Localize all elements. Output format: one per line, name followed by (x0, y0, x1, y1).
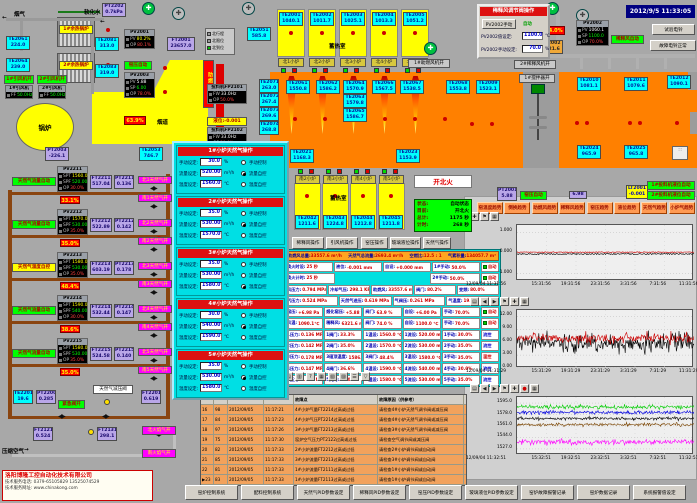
label-gy: 2#稀释风机开 (514, 60, 556, 69)
valve-icon[interactable]: ◀▶ (150, 357, 156, 364)
ng-radio-label[interactable]: 温度自控 (249, 284, 267, 290)
tag-PT2214: PT22140.147 (114, 304, 134, 318)
ng-radio-0[interactable] (241, 364, 246, 369)
chart-xtick: 15:32:51 (532, 456, 551, 461)
controller-row: PV80.2% (125, 36, 154, 42)
company-website[interactable]: 技术服务网址: www.chinakong.com (5, 486, 150, 492)
dilution-fan-dialog: 稀释风调节阀操作 PV2002手动 自动 PV2002值设定: 1100.0 ℃… (477, 4, 550, 59)
tag-value: 1211.8 (380, 222, 402, 228)
pv2002-setpoint-input[interactable]: 1100.0 (522, 32, 543, 40)
controller-row: SP1100.0 (577, 33, 608, 39)
tag-FT2201: FT22010.619 (141, 390, 161, 404)
tag-FT2121: FT21210.524 (33, 427, 53, 441)
status-row: 计时:268 秒 (417, 222, 469, 229)
stirrer-paddle (529, 116, 547, 119)
bottom-button-2[interactable]: 天然气PID参数设定 (297, 485, 350, 500)
ng-radio-label[interactable]: 手动控制 (249, 160, 267, 166)
alarm-table-row[interactable]: 16982012/09/0511:17:214#小炉气量FT2214过高或过低请… (201, 405, 466, 415)
ng-field-input[interactable]: 520.00 (200, 169, 222, 177)
panel-value-cell: 液位:-0.001 mm (334, 262, 382, 272)
panel-value-cell: 1阀门:33.3% (324, 330, 362, 340)
gas-valve-opening: 33.1% (60, 196, 80, 204)
ng-field-input[interactable]: 35.0 (200, 209, 222, 217)
valve-icon[interactable]: ◀▶ (150, 332, 156, 339)
port-open-indicator[interactable] (312, 68, 317, 73)
chart-xtick: 7:31:56 (650, 282, 667, 287)
tag-value: 1011.7 (311, 19, 333, 25)
valve-icon[interactable]: ◀▶ (150, 228, 156, 235)
port-close-indicator[interactable] (365, 169, 370, 174)
label-gr: 紧急阀开 (58, 400, 85, 409)
ng-field-unit: % (224, 262, 228, 267)
tag-value: 1586.7 (344, 115, 366, 121)
trend-button-1[interactable]: 倒换趋势 (504, 202, 530, 214)
panel-value-cell: 阀门:63.9 % (363, 307, 401, 317)
ng-panel-2: 2#小炉天然气操作手动设定:35.0%流量设定:530.00m³/h温度设定:1… (176, 196, 285, 245)
trend-button-4[interactable]: 窑压趋势 (587, 202, 613, 214)
table-toolbar-icon[interactable]: ? (306, 372, 315, 381)
gas-valve-opening: 35.0% (60, 368, 80, 376)
boiler-label: 锅炉 (39, 122, 52, 132)
pan-icon[interactable]: ✚ (510, 297, 519, 306)
panel-value-cell: 助燃风:33557.6 m³/h (371, 285, 413, 295)
bottom-button-5[interactable]: 玻璃液位PID参数设定 (465, 485, 518, 500)
pan-icon[interactable]: ✚ (510, 384, 519, 393)
op-button-2[interactable]: 窑压操作 (361, 237, 388, 249)
chart-xtick: 7:32:51 (650, 456, 667, 461)
status-row: 状态:自动状态 (417, 201, 469, 208)
fan-icon: ✚ (172, 7, 185, 20)
ng-radio-label[interactable]: 温度自控 (249, 335, 267, 341)
panel-value-cell: 自设:+6.00 Pa (403, 307, 441, 317)
ng-field-input[interactable]: 1580.0 (200, 384, 222, 392)
thermocouple-dot (163, 90, 167, 94)
tag-TE2001: TE20011040.1 (279, 12, 303, 26)
ng-radio-label[interactable]: 流量自控 (249, 222, 267, 228)
damper-dot (361, 194, 365, 198)
pv2002-manual-label: PV2002手动设定: (481, 47, 517, 53)
tag-TE2066: TE20661567.5 (372, 80, 396, 94)
tag-value: -226.1 (46, 154, 68, 160)
tag-FT2211: FT2211517.04 (90, 175, 112, 189)
panel-value-cell: 1温设:1560.0 ℃ (363, 330, 401, 340)
flag-icon[interactable]: ⚑ (480, 212, 489, 221)
ng-operation-dialog: 1#小炉天然气操作手动设定:30.0%流量设定:520.00m³/h温度设定:1… (172, 141, 289, 400)
tag-TE2062: TE20621586.2 (316, 80, 340, 94)
gas-valve-north-label: 北2天然气开 (138, 219, 172, 227)
tag-value: 19.6 (14, 397, 32, 403)
gas-valve-south-label: 南1天然气开 (138, 194, 172, 202)
static-text: → (24, 447, 29, 453)
ng-radio-0[interactable] (241, 262, 246, 267)
thermocouple-dot (628, 121, 632, 125)
panel-value-cell: 5流设:530.00 m³/h (403, 375, 441, 385)
chart-toolbar: ▤◀▶⚑✚▦ (470, 297, 529, 306)
ng-radio-2[interactable] (241, 233, 246, 238)
tag-TE2071: TE2071263.0 (259, 79, 279, 93)
chart-icon[interactable]: ▤ (470, 384, 479, 393)
trend-button-2[interactable]: 助燃风趋势 (532, 202, 558, 214)
tag-value: 268.8 (260, 128, 278, 134)
valve-icon: ◀▶ (102, 413, 108, 420)
flag-icon[interactable]: ⚑ (500, 384, 509, 393)
alarm-table-row[interactable]: 19752012/09/0511:17:30窑炉空气压力PT2122过高或过低请… (201, 435, 466, 445)
chart-xtick: 15:31:29 (532, 369, 551, 374)
panel-value-cell: 自设:1100.0 ℃ (403, 318, 441, 328)
port-open-indicator[interactable] (382, 169, 387, 174)
status-row: 目前:开北火 (417, 208, 469, 215)
pipe (580, 58, 583, 69)
valve-icon[interactable]: ◀▶ (150, 375, 156, 382)
valve-icon[interactable]: ◀▶ (150, 314, 156, 321)
trend-chart-1[interactable] (516, 309, 693, 367)
port-open-indicator[interactable] (343, 68, 348, 73)
panel-value-cell: 3碹顶温度:1586.7℃ (324, 352, 362, 362)
fan-icon: ✚ (142, 2, 155, 15)
chart-ytick: 1561.0 (466, 422, 512, 427)
op-button-3[interactable]: 玻璃液位操作 (390, 237, 421, 249)
port-open-indicator[interactable] (281, 68, 286, 73)
alarm-table-row[interactable]: 18972012/09/0511:17:263#小炉气量FT2213过高或过低请… (201, 425, 466, 435)
ng-field-input[interactable]: 35.0 (200, 362, 222, 370)
chart-xtick: 11:31:56 (679, 282, 697, 287)
trend-chart-2[interactable] (516, 396, 693, 454)
ng-field-input[interactable]: 1580.0 (200, 282, 222, 290)
damper-dot (320, 31, 324, 35)
ng-panel-5: 5#小炉天然气操作手动设定:35.0%流量设定:530.00m³/h温度设定:1… (176, 349, 285, 398)
valve-icon[interactable]: ◀▶ (150, 246, 156, 253)
ng-radio-label[interactable]: 流量自控 (249, 324, 267, 330)
flag-icon[interactable]: ⚑ (500, 297, 509, 306)
tag-value: 965.9 (578, 152, 600, 158)
trend-button-7[interactable]: 小炉气趋势 (669, 202, 695, 214)
ng-field-label: 温度设定: (179, 182, 198, 188)
reversal-legend: 北行程北限位北到位 (205, 28, 235, 55)
fan-icon: ✚ (424, 42, 437, 55)
table-toolbar-icon[interactable]: ☰ (350, 372, 359, 381)
valve-icon[interactable]: ◀▶ (150, 289, 156, 296)
alarm-table-row[interactable]: 22812012/09/0511:17:331#小炉流量FT2111过高或过低请… (201, 465, 466, 475)
valve-icon[interactable]: ◀▶ (150, 203, 156, 210)
ng-radio-0[interactable] (241, 211, 246, 216)
tag-TE2042: TE20421211.6 (295, 215, 319, 229)
label-gy: 1#搅拌器开 (519, 74, 555, 83)
ng-field-input[interactable]: 30.0 (200, 311, 222, 319)
label-yl: 2#余热锅炉 (59, 61, 93, 70)
tag-FT2212: FT2212522.89 (90, 218, 112, 232)
bottom-button-1[interactable]: 配料控制系统 (241, 485, 294, 500)
chart-icon[interactable]: ▤ (470, 297, 479, 306)
chart-xtick: 11:31:29 (679, 369, 697, 374)
panel-value-cell: 阀门:80.2% (414, 285, 456, 295)
thermocouple-dot (638, 121, 642, 125)
ng-radio-0[interactable] (241, 160, 246, 165)
chart-ytick: 1527.0 (466, 445, 512, 450)
port-close-indicator[interactable] (309, 169, 314, 174)
ng-radio-1[interactable] (241, 171, 246, 176)
gas-valve-north-label: 北4天然气开 (138, 305, 172, 313)
bottom-button-3[interactable]: 稀释风PID参数设定 (353, 485, 406, 500)
chart-start-label: 12/09/04 11:31:29 (466, 369, 506, 374)
table-toolbar-icon[interactable]: ▦ (317, 372, 326, 381)
port-close-indicator[interactable] (323, 68, 328, 73)
panel-value-cell: 2压力:0.142 MPa (285, 341, 323, 351)
panel-value-cell: 2温设:1570.0 ℃ (363, 341, 401, 351)
chart-xtick: 19:31:56 (561, 282, 580, 287)
ng-field-input[interactable]: 1570.0 (200, 231, 222, 239)
thermocouple-dot (106, 28, 110, 32)
pv2002-manual-button[interactable]: PV2002手动 (482, 19, 516, 29)
alarm-table-row[interactable]: 20822012/09/0511:17:332#小炉流量FT2212过高或过低请… (201, 445, 466, 455)
chart-xtick: 3:31:29 (620, 369, 637, 374)
ng-radio-2[interactable] (241, 284, 246, 289)
chart-xtick: 23:32:51 (591, 456, 610, 461)
panel-value-cell: 风温:1090.1℃ (285, 318, 323, 328)
alarm-table-row[interactable]: 21852012/09/0511:17:333#小炉流量FT2213过高或过低请… (201, 455, 466, 465)
stop-icon[interactable]: ● (520, 384, 529, 393)
stirrer-motor (531, 84, 545, 94)
port-close-indicator[interactable] (337, 169, 342, 174)
tag-TE2064: TE20641570.9 (343, 80, 367, 94)
alarm-table-row[interactable]: 17842012/09/0511:17:234#小炉气压PT2214过高或过低请… (201, 415, 466, 425)
table-toolbar-icon[interactable]: ▽ (361, 372, 370, 381)
tag-value: 319.0 (96, 71, 118, 77)
op-button-1[interactable]: 引风机操作 (326, 237, 358, 249)
static-text: ← (100, 19, 105, 25)
valve-icon[interactable]: ◀▶ (150, 185, 156, 192)
datetime-display: 2012/9/5 11:33:05 (626, 5, 695, 18)
gas-valve-north-label: 北1天然气开 (138, 176, 172, 184)
tag-value: 1079.6 (625, 84, 647, 90)
ng-radio-2[interactable] (241, 335, 246, 340)
static-text: 压缩空气 (2, 447, 24, 455)
ng-field-input[interactable]: 540.00 (200, 322, 222, 330)
thermocouple-dot (443, 117, 447, 121)
pv2002-setpoint-unit: ℃ (545, 34, 550, 39)
chart-xtick: 19:31:29 (561, 369, 580, 374)
bottom-button-4[interactable]: 窑压PID参数设定 (409, 485, 462, 500)
ng-panel-title: 4#小炉天然气操作 (178, 300, 283, 309)
port-open-indicator[interactable] (405, 68, 410, 73)
port-close-indicator[interactable] (416, 68, 421, 73)
pv2002-manual-input[interactable]: 70.0 (522, 45, 543, 53)
ng-field-unit: % (224, 364, 228, 369)
ng-radio-label[interactable]: 温度自控 (249, 386, 267, 392)
port-open-indicator[interactable] (354, 169, 359, 174)
pipe (608, 58, 611, 69)
tag-TE2081: TE2081313.0 (95, 37, 119, 51)
gas-valve-south-label: 南3天然气开 (138, 280, 172, 288)
table-toolbar-icon[interactable]: ▨ (339, 372, 348, 381)
ng-radio-1[interactable] (241, 375, 246, 380)
tag-value: 1579.8 (344, 101, 366, 107)
gas-valve-opening: 35.0% (60, 239, 80, 247)
mimic-shape (92, 92, 208, 144)
label-gr: 2#投料机液位自动 (647, 191, 695, 200)
tag-value: 0.285 (37, 397, 55, 403)
ng-field-input[interactable]: 30.0 (200, 158, 222, 166)
damper-dot (305, 194, 309, 198)
save-icon[interactable]: ▦ (490, 212, 499, 221)
bottom-button-6[interactable]: 窑炉故障报警记录 (521, 485, 574, 500)
chart-xtick: 11:32:51 (679, 456, 697, 461)
ng-radio-label[interactable]: 温度自控 (249, 182, 267, 188)
port-close-indicator[interactable] (292, 68, 297, 73)
save-icon[interactable]: ▦ (530, 384, 539, 393)
port-close-indicator[interactable] (354, 68, 359, 73)
ng-field-input[interactable]: 530.00 (200, 220, 222, 228)
label-gr: 窑压自动 (520, 191, 547, 200)
tag-value: 1040.1 (280, 19, 302, 25)
bottom-button-7[interactable]: 窑炉数据记录 (577, 485, 630, 500)
ng-radio-2[interactable] (241, 182, 246, 187)
ng-radio-label[interactable]: 手动控制 (249, 262, 267, 268)
controller-PV2213: PV2213SPT1580.0SPF530.00OP35.0% (57, 252, 88, 278)
ng-field-label: 流量设定: (179, 222, 198, 228)
trend-chart-0[interactable] (516, 224, 693, 280)
valve-icon[interactable]: ◀▶ (150, 271, 156, 278)
port-close-indicator[interactable] (385, 68, 390, 73)
tag-TE2005: TE20051051.2 (403, 12, 427, 26)
port-label-north: 北1小炉 (278, 58, 304, 67)
op-button-0[interactable]: 稀释风操作 (292, 237, 324, 249)
ng-field-unit: m³/h (224, 222, 234, 227)
fault-bell-status-button[interactable]: 故障电铃正常 (650, 40, 696, 51)
fan-icon: ✚ (242, 2, 255, 15)
tag-TE2012: TE20121090.1 (667, 75, 691, 89)
bottom-button-0[interactable]: 窑炉控制系统 (185, 485, 238, 500)
valve-opening-value: 63.9% (124, 116, 146, 125)
label-yl: 液位:-0.001 (207, 117, 247, 126)
ng-radio-1[interactable] (241, 222, 246, 227)
static-text: ← (2, 15, 7, 21)
boiler-shape: 锅炉 (16, 103, 74, 151)
pipe (543, 54, 695, 58)
ng-panel-title: 2#小炉天然气操作 (178, 198, 283, 207)
alarm-table: 故障点故障原因（供参考）16982012/09/0511:17:214#小炉气量… (200, 394, 467, 486)
ng-radio-label[interactable]: 流量自控 (249, 273, 267, 279)
trend-button-5[interactable]: 液位趋势 (614, 202, 640, 214)
prev-icon[interactable]: ◀ (480, 384, 489, 393)
scada-furnace-screen: 2012/9/5 11:33:05 锅炉 北行程北限位北到位 开北火 状态:自动… (0, 0, 697, 503)
ng-radio-label[interactable]: 流量自控 (249, 375, 267, 381)
next-icon[interactable]: ▶ (490, 297, 499, 306)
chart-ytick: 1595.0 (466, 399, 512, 404)
tag-TE2010: TE20101081.1 (577, 77, 601, 91)
bottom-button-8[interactable]: 系统报警值设定 (633, 485, 686, 500)
tag-TE2004: TE20041013.3 (372, 12, 396, 26)
controller-row: PV1060.1 (577, 27, 608, 33)
tag-value: 1153.9 (397, 156, 419, 162)
panel-value-cell: 3温设:1580.0 ℃ (403, 352, 441, 362)
tag-value: 1567.5 (373, 87, 395, 93)
table-toolbar-icon[interactable]: ▧ (328, 372, 337, 381)
tag-value: 239.0 (7, 65, 29, 71)
alarm-table-row[interactable]: ▶23832012/09/0511:17:331#小炉流量FT2113过高或过低… (201, 475, 466, 485)
thermocouple-dot (383, 117, 387, 121)
ng-radio-label[interactable]: 手动控制 (249, 211, 267, 217)
ng-field-label: 温度设定: (179, 284, 198, 290)
tag-value: 746.7 (140, 154, 162, 160)
prev-icon[interactable]: ◀ (480, 297, 489, 306)
pipe (636, 58, 639, 69)
save-icon[interactable]: ▦ (520, 297, 529, 306)
tag-FT2001: FT200123657.0 (167, 37, 195, 51)
port-open-indicator[interactable] (374, 68, 379, 73)
trend-button-6[interactable]: 天然气趋势 (641, 202, 667, 214)
next-icon[interactable]: ▶ (490, 384, 499, 393)
ng-radio-label[interactable]: 手动控制 (249, 313, 267, 319)
ng-field-input[interactable]: 1560.0 (200, 180, 222, 188)
tag-value: -0.001 (627, 192, 647, 198)
static-text: 蓄热室 (329, 42, 346, 50)
test-bell-button[interactable]: 试验电铃 (652, 24, 695, 35)
panel-value-cell: 煅化窑压:+5.88 Pa (324, 307, 362, 317)
ng-field-label: 手动设定: (179, 262, 198, 268)
tag-LT2001: LT2001-0.001 (626, 185, 648, 199)
port-open-indicator[interactable] (298, 169, 303, 174)
tag-FT2214: FT2214532.44 (90, 304, 112, 318)
pv2002-mode-state: 自动 (523, 21, 532, 27)
panel-value-cell: 3压力:0.178 MPa (285, 352, 323, 362)
ng-field-input[interactable]: 530.00 (200, 373, 222, 381)
ng-field-unit: % (224, 160, 228, 165)
ng-field-label: 温度设定: (179, 335, 198, 341)
port-open-indicator[interactable] (326, 169, 331, 174)
ng-field-input[interactable]: 1590.0 (200, 333, 222, 341)
panel-value-cell: 气压力:0.524 MPa (285, 296, 338, 306)
tag-value: 1168.3 (291, 156, 313, 162)
label-gr: 2#引风机开 (37, 75, 67, 84)
controller-投料机FP2101: 投料机FP2101FW33.0HzOP50.0% (207, 84, 247, 104)
pv2002-manual-unit: % (545, 47, 549, 52)
port-close-indicator[interactable] (393, 169, 398, 174)
tag-value: 1550.8 (287, 87, 309, 93)
ng-panel-title: 1#小炉天然气操作 (178, 147, 283, 156)
bubbler-indicator: ∷ (672, 146, 688, 160)
ng-radio-label[interactable]: 流量自控 (249, 171, 267, 177)
tag-FT2131: FT2131298.1 (97, 427, 117, 441)
table-toolbar-icon[interactable]: ▥ (295, 372, 304, 381)
controller-title: 1#引风机 (6, 86, 32, 92)
chart-xtick: 23:31:29 (591, 369, 610, 374)
panel-value-cell: 窑压:+6.98 Pa (285, 307, 323, 317)
company-info-box: 洛阳博隆工控自动化技术有限公司 技术服务电话: 0379-65105829 13… (2, 470, 153, 501)
tag-TE2061: TE2061224.0 (6, 36, 30, 50)
ng-field-input[interactable]: 530.00 (200, 271, 222, 279)
ng-radio-0[interactable] (241, 313, 246, 318)
ng-radio-2[interactable] (241, 386, 246, 391)
tag-PT2202: PT22020.7kPa (102, 3, 126, 17)
chart-xtick: 3:32:51 (620, 456, 637, 461)
thermocouple-dot (575, 121, 579, 125)
ng-radio-1[interactable] (241, 324, 246, 329)
trend-button-3[interactable]: 稀释风趋势 (559, 202, 585, 214)
ng-radio-label[interactable]: 手动控制 (249, 364, 267, 370)
label-gr: 稀释风自动 (611, 35, 644, 44)
ng-radio-label[interactable]: 温度自控 (249, 233, 267, 239)
tag-value: 1013.3 (373, 19, 395, 25)
ng-field-input[interactable]: 35.0 (200, 260, 222, 268)
tag-TE2011: TE20111079.6 (624, 77, 648, 91)
chart-toolbar: ✚⚑▦ (470, 212, 499, 221)
ng-radio-1[interactable] (241, 273, 246, 278)
thermocouple-dot (323, 117, 327, 121)
op-button-4[interactable]: 天然气操作 (423, 237, 451, 249)
controller-row: OP78.0% (125, 91, 154, 97)
panel-value-cell: 2阀门:35.0% (324, 341, 362, 351)
ng-field-unit: ℃ (224, 386, 229, 391)
